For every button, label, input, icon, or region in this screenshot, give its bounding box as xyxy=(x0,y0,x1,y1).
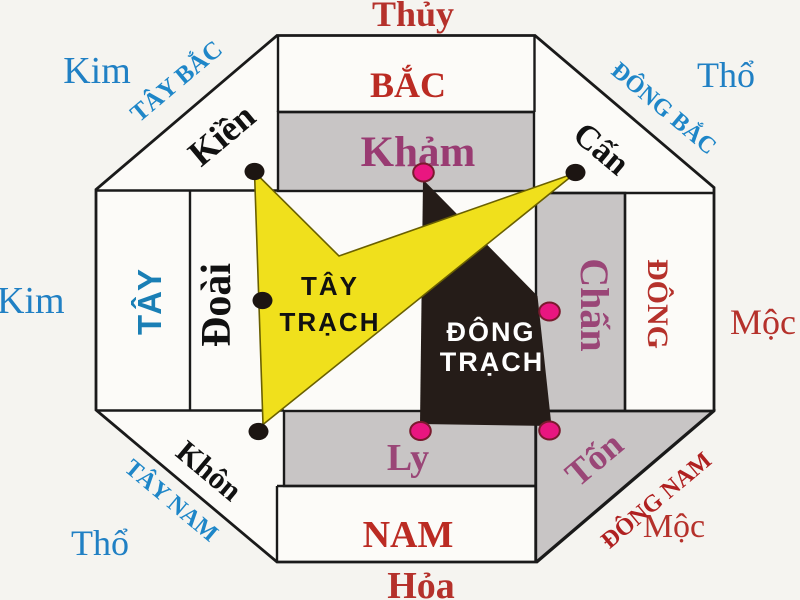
svg-text:ĐÔNG: ĐÔNG xyxy=(641,259,674,349)
svg-text:TÂY: TÂY xyxy=(301,271,359,301)
svg-text:Đoài: Đoài xyxy=(194,263,240,347)
svg-text:Hỏa: Hỏa xyxy=(387,565,455,600)
svg-text:ĐÔNG: ĐÔNG xyxy=(447,316,536,347)
svg-text:Thổ: Thổ xyxy=(71,523,129,563)
svg-text:TRẠCH: TRẠCH xyxy=(440,347,545,377)
svg-text:Chấn: Chấn xyxy=(572,258,617,351)
svg-text:Mộc: Mộc xyxy=(730,302,796,342)
svg-text:NAM: NAM xyxy=(363,514,454,556)
svg-text:Kim: Kim xyxy=(0,280,65,322)
svg-text:Ly: Ly xyxy=(387,437,429,479)
svg-text:Thổ: Thổ xyxy=(697,55,755,95)
svg-text:BẮC: BẮC xyxy=(370,65,446,105)
svg-text:Thủy: Thủy xyxy=(372,0,454,34)
svg-text:Kim: Kim xyxy=(63,50,131,92)
svg-text:TÂY: TÂY xyxy=(131,269,168,335)
svg-text:TRẠCH: TRẠCH xyxy=(280,307,381,337)
